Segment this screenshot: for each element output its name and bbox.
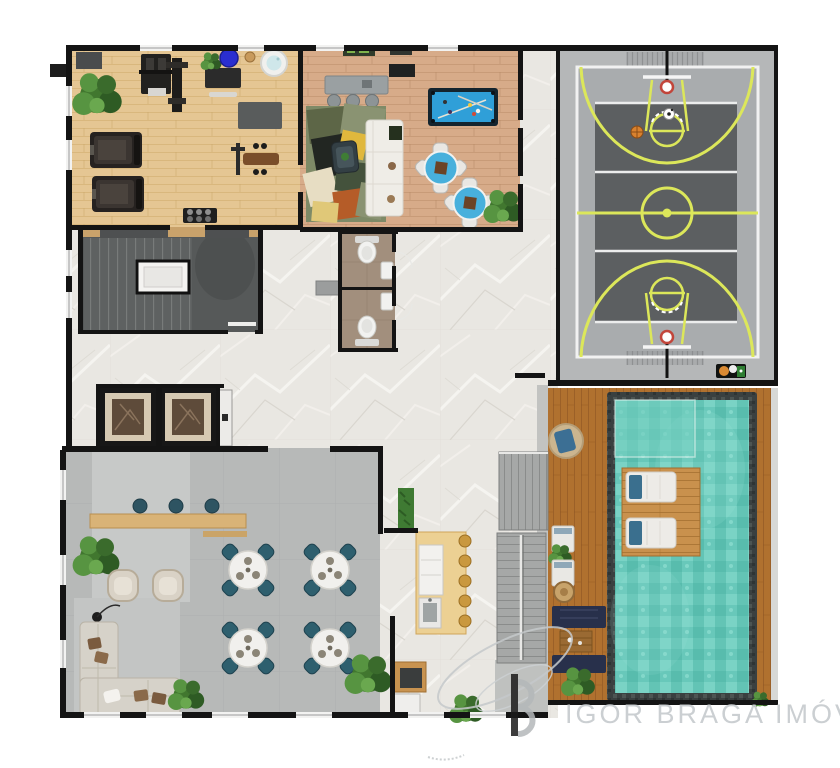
bar-stool <box>205 499 219 513</box>
treadmill <box>90 132 142 168</box>
basketball <box>631 126 643 138</box>
console-table <box>325 76 388 108</box>
sink <box>419 598 441 628</box>
gym-cabinet <box>76 52 102 69</box>
dining-table <box>302 542 358 598</box>
lounge-armchair <box>331 140 359 173</box>
dining-table <box>220 620 276 676</box>
wicker-table <box>554 582 574 602</box>
treadmill <box>92 176 144 212</box>
sun-lounger <box>626 518 676 548</box>
watermark-text: IGOR BRAGA IMÓVEIS <box>565 698 840 729</box>
dining-table <box>302 620 358 676</box>
massage-tub <box>261 50 287 76</box>
tray <box>389 126 402 140</box>
pallet-table <box>560 631 592 652</box>
hall-bench <box>316 281 341 295</box>
stairwell <box>82 227 260 332</box>
hedge <box>398 488 414 530</box>
fitness-room <box>50 49 300 227</box>
party-room <box>62 448 391 716</box>
lounge-mat <box>552 655 606 673</box>
gym-mat <box>238 102 282 129</box>
stair-door <box>228 322 256 326</box>
central-stairs <box>497 452 548 663</box>
sun-lounger <box>626 472 676 502</box>
pool-terrace <box>548 388 778 707</box>
elevator <box>160 388 216 446</box>
games-lounge <box>300 47 523 230</box>
elevator <box>100 388 156 446</box>
elevator-lobby <box>100 388 232 446</box>
bar-stool <box>133 499 147 513</box>
sofa <box>366 120 403 216</box>
glass-wall <box>771 388 778 702</box>
soccer-ball <box>664 109 675 120</box>
entry-shelf <box>615 400 695 457</box>
bar-stool <box>169 499 183 513</box>
in-pool-deck <box>622 468 700 556</box>
armchair <box>108 570 138 601</box>
ball-tray <box>716 364 746 378</box>
multi-gym-machine <box>139 54 173 96</box>
round-daybed <box>549 424 583 458</box>
washbasin <box>381 293 393 310</box>
tv-panel <box>389 64 415 77</box>
floor-plan-canvas: IGOR BRAGA IMÓVEIS <box>0 0 840 768</box>
grill <box>400 668 422 688</box>
sports-court <box>557 45 777 385</box>
dining-table <box>220 542 276 598</box>
washbasin <box>381 262 393 279</box>
dumbbell-rack <box>183 208 217 223</box>
cabinet <box>419 545 443 595</box>
billiards-table <box>428 88 498 126</box>
armchair <box>153 570 183 601</box>
stool <box>245 52 255 62</box>
upper-flight <box>499 452 548 530</box>
grandstand <box>626 52 704 66</box>
